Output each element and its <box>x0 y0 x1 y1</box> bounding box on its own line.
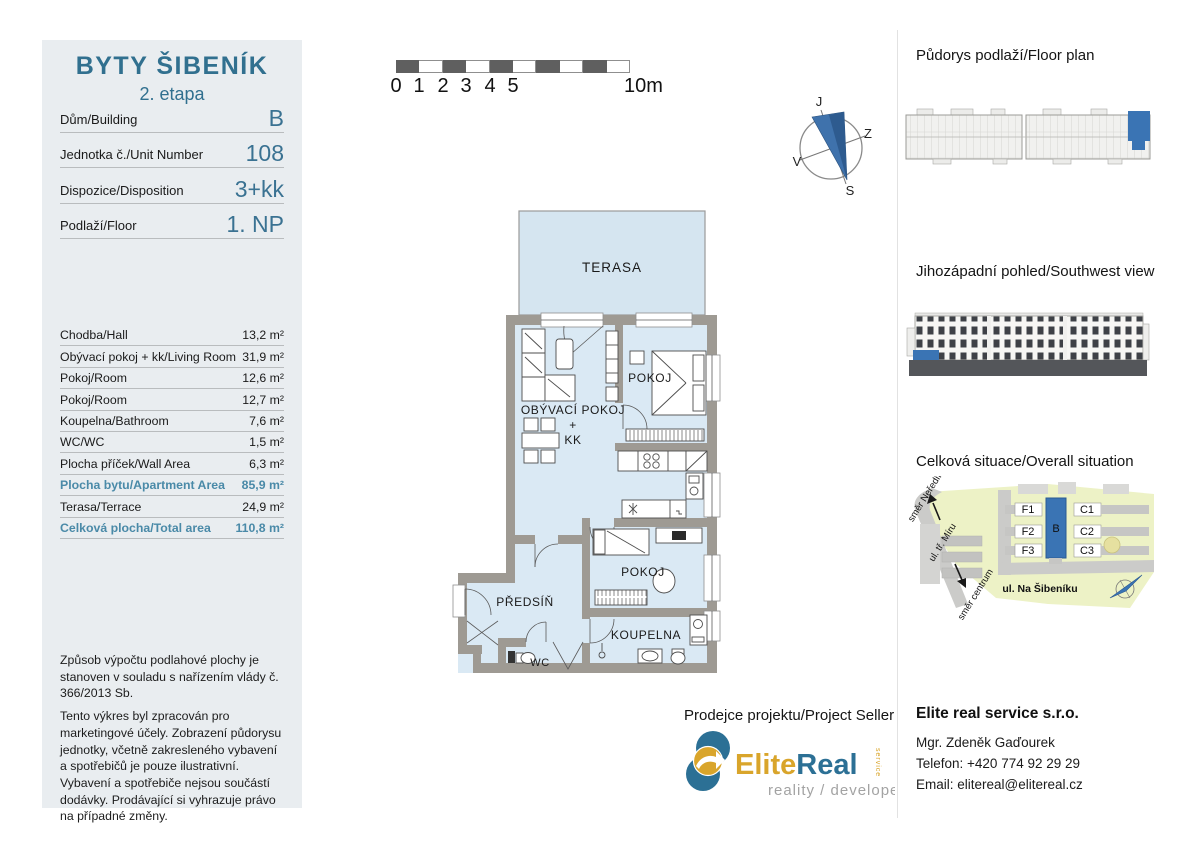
wardrobe <box>626 429 704 441</box>
svg-text:F2: F2 <box>1022 526 1035 538</box>
unit-info-label: Dispozice/Disposition <box>60 183 184 203</box>
shelf-unit <box>606 331 618 401</box>
desk-laptop <box>672 531 686 540</box>
scale-bar-segments <box>396 60 630 73</box>
area-row-apartment-total: Plocha bytu/Apartment Area85,9 m² <box>60 475 284 496</box>
info-sidebar: BYTY ŠIBENÍK 2. etapa Dům/Building B Jed… <box>42 40 302 808</box>
logo-text-elite: Elite <box>735 749 796 781</box>
logo-tagline: reality / developer <box>768 782 895 799</box>
seller-contact: Mgr. Zdeněk Gaďourek <box>916 735 1055 750</box>
project-seller-heading: Prodejce projektu/Project Seller <box>684 707 894 724</box>
svg-text:C3: C3 <box>1080 545 1094 557</box>
street-bottom-label: ul. Na Šibeníku <box>1002 582 1077 595</box>
compass-label-s: S <box>846 183 855 198</box>
area-row: Pokoj/Room12,7 m² <box>60 389 284 410</box>
elitereal-logo: EliteReal service reality / developer <box>683 724 895 808</box>
roundabout <box>1104 537 1120 553</box>
area-value: 12,6 m² <box>242 371 284 388</box>
area-label: Chodba/Hall <box>60 328 128 345</box>
area-row: WC/WC1,5 m² <box>60 432 284 453</box>
unit-info-value: B <box>269 107 284 132</box>
unit-info-label: Jednotka č./Unit Number <box>60 147 203 167</box>
floor-plan-heading: Půdorys podlaží/Floor plan <box>916 47 1094 64</box>
area-label: WC/WC <box>60 435 104 452</box>
apartment-floor-plan: TERASA <box>440 205 732 687</box>
area-value: 85,9 m² <box>242 478 284 495</box>
room-label-wc: WC <box>530 657 550 669</box>
svg-text:C2: C2 <box>1080 526 1094 538</box>
room-label-terrace: TERASA <box>582 260 642 275</box>
disclaimer-paragraph: Způsob výpočtu podlahové plochy je stano… <box>60 652 286 702</box>
area-label: Koupelna/Bathroom <box>60 414 169 431</box>
seller-company: Elite real service s.r.o. <box>916 705 1079 723</box>
logo-text-real: Real <box>796 749 857 781</box>
area-value: 12,7 m² <box>242 393 284 410</box>
elevation-base <box>909 360 1147 376</box>
unit-info-label: Podlaží/Floor <box>60 218 137 238</box>
overall-situation-heading: Celková situace/Overall situation <box>916 453 1134 470</box>
flyer-page: BYTY ŠIBENÍK 2. etapa Dům/Building B Jed… <box>0 0 1200 848</box>
svg-text:F3: F3 <box>1022 545 1035 557</box>
room-label-living: OBÝVACÍ POKOJ <box>521 402 625 417</box>
scale-tick: 0 <box>384 75 408 98</box>
compass-label-z: Z <box>864 126 872 141</box>
panel-divider <box>897 30 898 818</box>
svg-text:EliteReal: EliteReal <box>735 749 858 781</box>
scale-bar: 0 1 2 3 4 5 10m <box>396 60 676 106</box>
area-value: 110,8 m² <box>235 521 284 538</box>
unit-info-value: 1. NP <box>226 213 284 238</box>
seller-email: Email: elitereal@elitereal.cz <box>916 777 1083 792</box>
unit-info-row: Dispozice/Disposition 3+kk <box>60 171 284 204</box>
area-row: Obývací pokoj + kk/Living Room31,9 m² <box>60 346 284 367</box>
unit-info-value: 3+kk <box>235 178 284 203</box>
highlighted-unit <box>1128 111 1150 141</box>
compass-label-j: J <box>816 94 823 109</box>
elitereal-logo-icon <box>686 731 730 791</box>
area-row: Pokoj/Room12,6 m² <box>60 368 284 389</box>
building-floor-plan-thumbnail <box>903 93 1153 177</box>
unit-info-row: Jednotka č./Unit Number 108 <box>60 135 284 168</box>
svg-text:C1: C1 <box>1080 504 1094 516</box>
disclaimer-paragraph: Tento výkres byl zpracován pro marketing… <box>60 708 286 825</box>
scale-tick: 1 <box>407 75 431 98</box>
wardrobe <box>595 590 647 605</box>
coffee-table <box>556 339 573 369</box>
site-map: F1 F2 F3 B C1 C2 C3 směr Neředín ul. tř.… <box>898 476 1160 628</box>
area-table: Chodba/Hall13,2 m² Obývací pokoj + kk/Li… <box>60 325 284 539</box>
area-label: Obývací pokoj + kk/Living Room <box>60 350 236 367</box>
unit-info-label: Dům/Building <box>60 112 137 132</box>
area-row: Koupelna/Bathroom7,6 m² <box>60 411 284 432</box>
scale-tick: 5 <box>501 75 525 98</box>
area-row: Plocha příček/Wall Area6,3 m² <box>60 453 284 474</box>
logo-text-service: service <box>874 748 881 777</box>
room-label-kk: KK <box>564 433 581 447</box>
scale-tick: 3 <box>454 75 478 98</box>
highlighted-unit-elevation <box>913 350 939 360</box>
area-row: Chodba/Hall13,2 m² <box>60 325 284 346</box>
area-value: 7,6 m² <box>249 414 284 431</box>
area-label: Terasa/Terrace <box>60 500 141 517</box>
svg-text:F1: F1 <box>1022 504 1035 516</box>
project-title: BYTY ŠIBENÍK <box>42 52 302 81</box>
area-label: Plocha bytu/Apartment Area <box>60 478 225 495</box>
area-value: 13,2 m² <box>242 328 284 345</box>
unit-info-value: 108 <box>246 142 284 167</box>
area-label: Pokoj/Room <box>60 371 127 388</box>
room-label-bathroom: KOUPELNA <box>611 628 681 642</box>
scale-end-label: 10m <box>624 75 684 98</box>
area-value: 6,3 m² <box>249 457 284 474</box>
southwest-elevation <box>903 298 1153 390</box>
southwest-view-heading: Jihozápadní pohled/Southwest view <box>916 263 1155 280</box>
area-value: 1,5 m² <box>249 435 284 452</box>
unit-info-row: Podlaží/Floor 1. NP <box>60 206 284 239</box>
compass-label-v: V <box>793 154 802 169</box>
compass-rose: J Z V S <box>775 92 895 212</box>
scale-tick: 4 <box>478 75 502 98</box>
seller-phone: Telefon: +420 774 92 29 29 <box>916 756 1080 771</box>
area-row-grand-total: Celková plocha/Total area110,8 m² <box>60 518 284 539</box>
room-label-living-plus: + <box>569 418 577 432</box>
area-value: 24,9 m² <box>242 500 284 517</box>
area-label: Celková plocha/Total area <box>60 521 211 538</box>
svg-text:B: B <box>1052 523 1059 535</box>
area-row: Terasa/Terrace24,9 m² <box>60 496 284 517</box>
unit-info-row: Dům/Building B <box>60 100 284 133</box>
room-label-bedroom2: POKOJ <box>621 565 665 579</box>
area-value: 31,9 m² <box>242 350 284 367</box>
room-label-bedroom1: POKOJ <box>628 371 672 385</box>
area-label: Plocha příček/Wall Area <box>60 457 190 474</box>
disclaimer: Způsob výpočtu podlahové plochy je stano… <box>60 652 286 825</box>
scale-tick: 2 <box>431 75 455 98</box>
area-label: Pokoj/Room <box>60 393 127 410</box>
room-label-hall: PŘEDSÍŇ <box>496 594 554 609</box>
